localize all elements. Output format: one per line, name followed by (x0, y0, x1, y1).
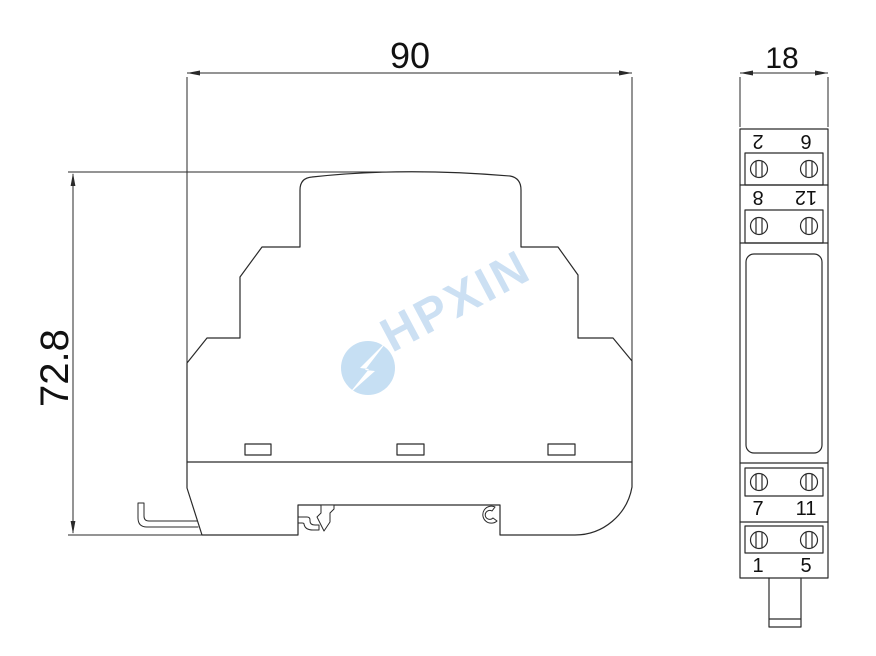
dimension-depth-18: 18 (740, 42, 828, 127)
vent-slot (397, 444, 424, 455)
arrowhead (815, 71, 828, 76)
screw-terminal (801, 161, 818, 178)
din-clip-tab (138, 503, 198, 527)
arrowhead (187, 71, 200, 76)
notch-left-bracket (298, 517, 319, 530)
watermark-logo-circle (341, 341, 395, 395)
screw-terminal (801, 532, 818, 549)
screw-terminal (751, 532, 768, 549)
bottom-plug (769, 578, 801, 627)
technical-drawing: HPXIN (0, 0, 876, 656)
dim-height-label: 72.8 (33, 329, 77, 407)
terminal-label-2: 2 (752, 130, 763, 152)
terminal-label-8: 8 (752, 186, 763, 208)
terminal-block (745, 526, 823, 553)
screw-terminal (751, 474, 768, 491)
watermark-text: HPXIN (372, 240, 540, 363)
dim-depth-label: 18 (765, 42, 798, 75)
arrowhead (71, 521, 76, 534)
terminal-label-5: 5 (800, 555, 811, 577)
screw-terminal (801, 218, 818, 235)
terminal-block (745, 210, 823, 243)
dimension-height-72-8: 72.8 (33, 172, 398, 535)
vent-slot (548, 444, 575, 455)
terminal-labels: 2 6 8 12 7 11 1 5 (752, 130, 817, 577)
arrowhead (740, 71, 753, 76)
watermark: HPXIN (341, 240, 540, 395)
terminal-block (745, 153, 823, 185)
arrowhead (71, 173, 76, 186)
notch-right-hook (483, 506, 497, 523)
terminal-label-11: 11 (796, 498, 817, 520)
din-rail-notch-details (298, 505, 497, 531)
notch-clip-pawl (317, 505, 334, 531)
terminal-label-6: 6 (800, 130, 811, 152)
screw-terminal (751, 218, 768, 235)
terminal-label-12: 12 (795, 186, 817, 208)
vent-slot (245, 444, 271, 455)
dim-width-label: 90 (390, 35, 430, 76)
terminal-block (745, 468, 823, 496)
terminal-label-7: 7 (752, 498, 763, 520)
arrowhead (619, 71, 632, 76)
screw-terminal (751, 161, 768, 178)
front-label-window (746, 254, 822, 453)
screw-terminal (801, 474, 818, 491)
terminal-label-1: 1 (752, 555, 763, 577)
drawing-page: HPXIN (0, 0, 876, 656)
